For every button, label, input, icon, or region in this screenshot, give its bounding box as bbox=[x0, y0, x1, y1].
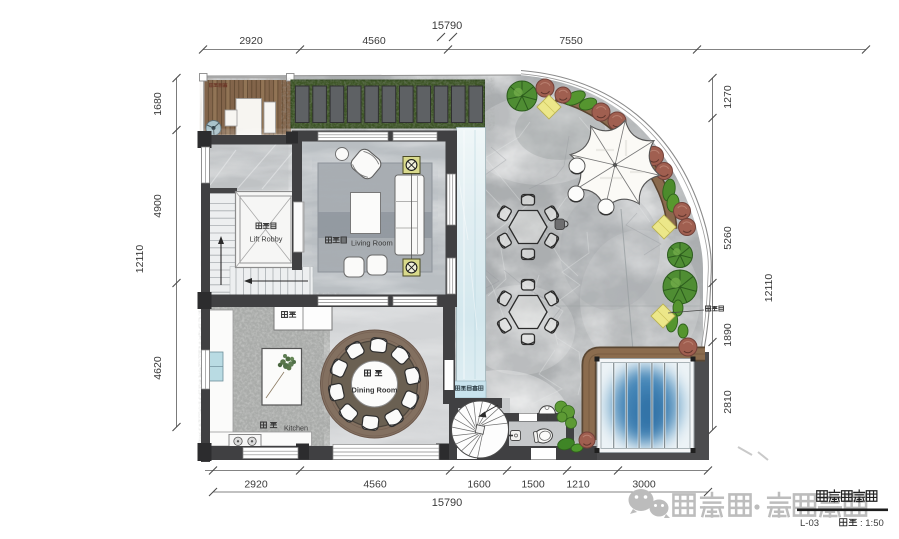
svg-text:3000: 3000 bbox=[632, 479, 656, 491]
svg-text:1500: 1500 bbox=[521, 479, 545, 491]
svg-text:4620: 4620 bbox=[152, 356, 164, 380]
svg-text:Kitchen: Kitchen bbox=[284, 424, 308, 433]
svg-text:12110: 12110 bbox=[134, 245, 146, 274]
svg-text:Lift Robby: Lift Robby bbox=[250, 235, 283, 244]
svg-text:4560: 4560 bbox=[363, 479, 387, 491]
svg-text:2920: 2920 bbox=[244, 479, 268, 491]
svg-text:1270: 1270 bbox=[722, 85, 734, 109]
svg-text:2920: 2920 bbox=[239, 35, 263, 47]
svg-text:L-03: L-03 bbox=[800, 518, 819, 529]
svg-text:7550: 7550 bbox=[559, 35, 583, 47]
svg-text:4560: 4560 bbox=[362, 35, 386, 47]
svg-text:15790: 15790 bbox=[432, 20, 463, 32]
svg-text:Living Room: Living Room bbox=[351, 239, 393, 248]
svg-text:1890: 1890 bbox=[722, 323, 734, 347]
svg-text:: 1:50: : 1:50 bbox=[860, 518, 884, 529]
svg-text:15790: 15790 bbox=[432, 497, 463, 509]
svg-text:1680: 1680 bbox=[152, 92, 164, 116]
svg-text:12110: 12110 bbox=[763, 274, 775, 303]
svg-text:1210: 1210 bbox=[566, 479, 590, 491]
svg-text:2810: 2810 bbox=[722, 390, 734, 414]
svg-text:4900: 4900 bbox=[152, 194, 164, 218]
svg-text:5260: 5260 bbox=[722, 226, 734, 250]
svg-text:Dining Room: Dining Room bbox=[352, 386, 398, 395]
svg-text:1600: 1600 bbox=[467, 479, 491, 491]
